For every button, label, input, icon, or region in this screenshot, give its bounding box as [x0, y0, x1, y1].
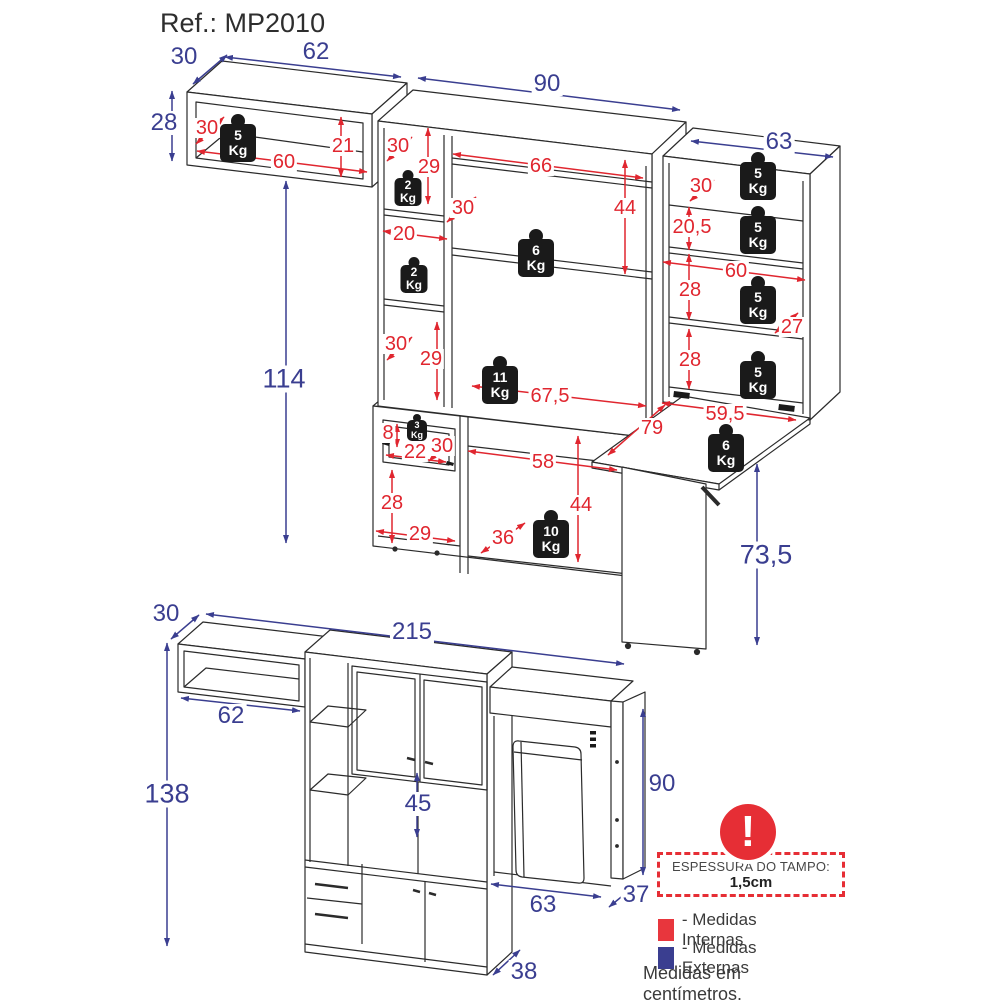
technical-diagram-page: Ref.: MP2010 306228906311473,53021562138…: [0, 0, 1000, 1000]
units-note: Medidas em centímetros.: [643, 963, 742, 1000]
upper-diagram-lines: [187, 61, 840, 655]
lower-diagram-lines: [178, 622, 645, 975]
warning-icon: !: [720, 804, 776, 860]
page-title: Ref.: MP2010: [160, 8, 325, 39]
furniture-line-drawing: [0, 0, 1000, 1000]
thickness-title: ESPESSURA DO TAMPO:: [672, 859, 830, 874]
thickness-value: 1,5cm: [730, 874, 773, 891]
